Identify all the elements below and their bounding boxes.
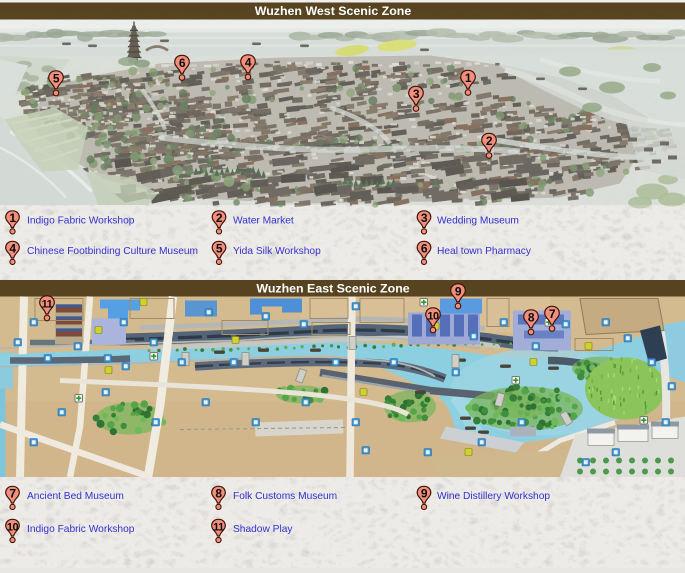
svg-text:6: 6 bbox=[179, 56, 186, 70]
svg-text:4: 4 bbox=[9, 241, 16, 255]
svg-text:11: 11 bbox=[213, 521, 224, 533]
svg-text:7: 7 bbox=[549, 307, 556, 321]
svg-text:1: 1 bbox=[465, 71, 472, 85]
svg-text:1: 1 bbox=[9, 211, 16, 225]
svg-text:5: 5 bbox=[216, 241, 223, 255]
svg-text:Heal town Pharmacy: Heal town Pharmacy bbox=[437, 246, 532, 257]
svg-text:3: 3 bbox=[413, 87, 420, 101]
svg-text:Indigo Fabric Workshop: Indigo Fabric Workshop bbox=[27, 215, 135, 226]
svg-text:Shadow Play: Shadow Play bbox=[233, 524, 293, 535]
svg-text:9: 9 bbox=[421, 486, 428, 500]
svg-text:Wuzhen West Scenic Zone: Wuzhen West Scenic Zone bbox=[255, 4, 412, 18]
svg-text:Chinese Footbinding Culture Mu: Chinese Footbinding Culture Museum bbox=[27, 246, 198, 257]
svg-text:11: 11 bbox=[42, 298, 53, 310]
svg-text:3: 3 bbox=[421, 211, 428, 225]
svg-text:2: 2 bbox=[216, 211, 223, 225]
svg-text:8: 8 bbox=[528, 310, 535, 324]
svg-text:Indigo Fabric Workshop: Indigo Fabric Workshop bbox=[27, 524, 135, 535]
svg-text:10: 10 bbox=[7, 521, 19, 533]
svg-text:7: 7 bbox=[9, 486, 16, 500]
svg-text:Folk Customs Museum: Folk Customs Museum bbox=[233, 491, 337, 502]
svg-text:5: 5 bbox=[53, 71, 60, 85]
svg-text:10: 10 bbox=[427, 310, 439, 322]
svg-text:6: 6 bbox=[421, 241, 428, 255]
svg-text:Ancient Bed Museum: Ancient Bed Museum bbox=[27, 491, 124, 502]
svg-text:Yida Silk Workshop: Yida Silk Workshop bbox=[233, 246, 321, 257]
svg-text:9: 9 bbox=[455, 284, 462, 298]
svg-text:2: 2 bbox=[486, 134, 493, 148]
svg-text:Water Market: Water Market bbox=[233, 215, 294, 226]
svg-text:8: 8 bbox=[215, 486, 222, 500]
svg-text:4: 4 bbox=[245, 55, 252, 69]
svg-text:Wine Distillery Workshop: Wine Distillery Workshop bbox=[437, 491, 550, 502]
svg-text:Wuzhen East Scenic Zone: Wuzhen East Scenic Zone bbox=[256, 282, 409, 296]
svg-text:Wedding Museum: Wedding Museum bbox=[437, 215, 519, 226]
